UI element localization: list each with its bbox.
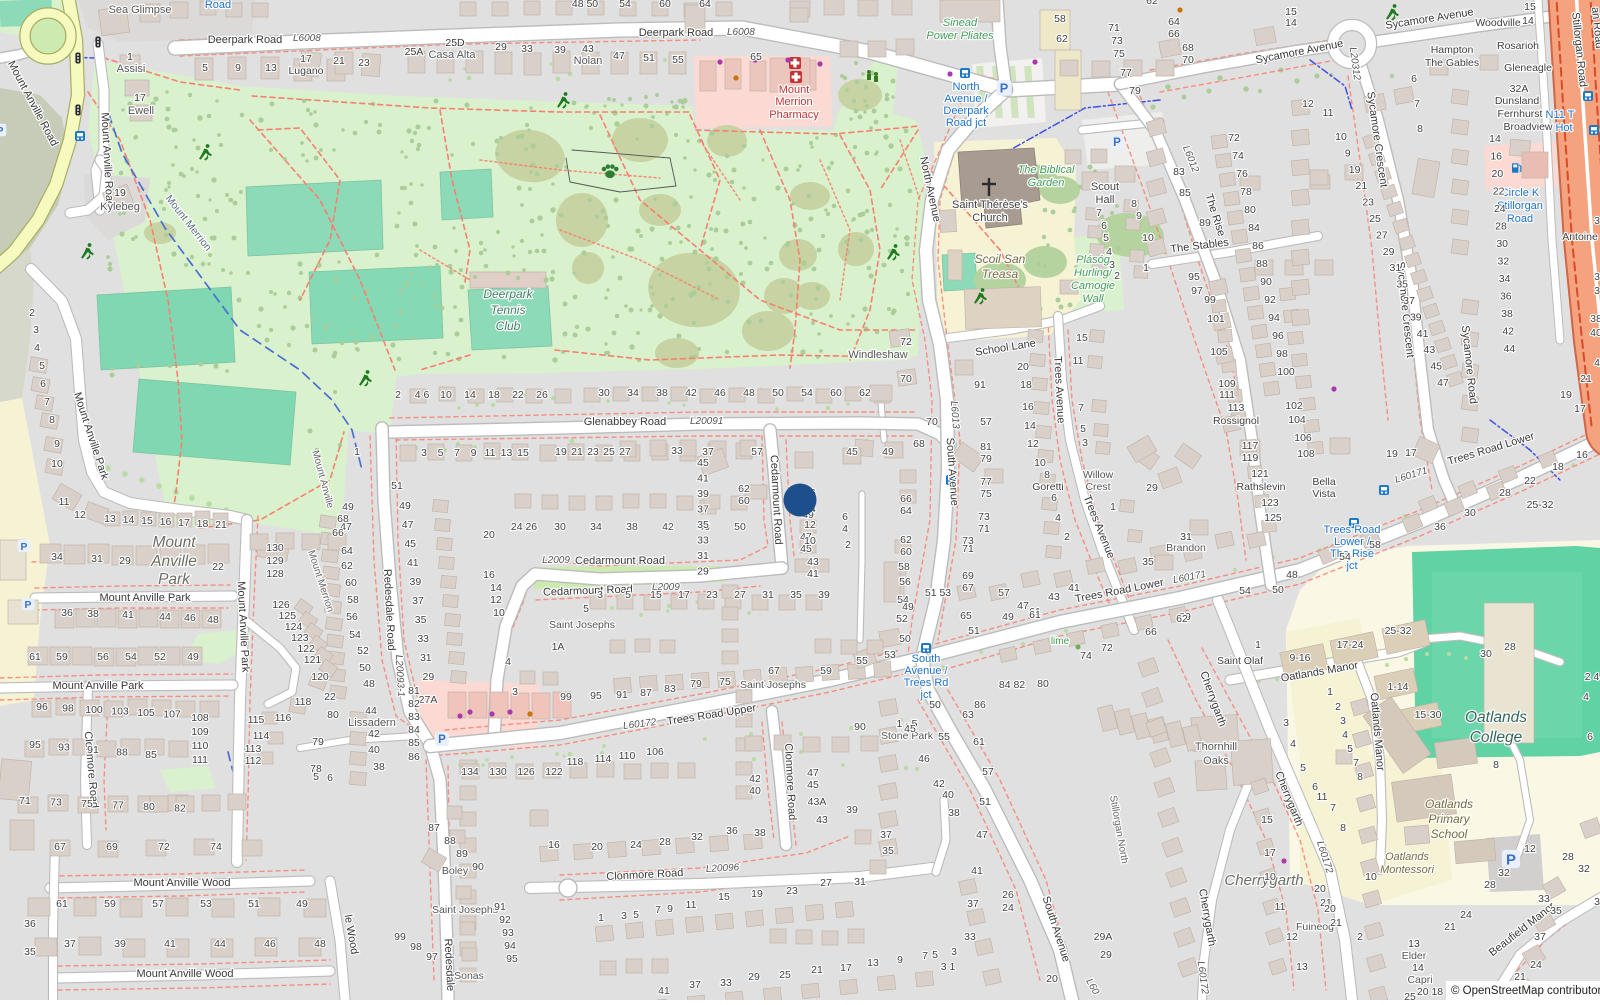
svg-text:10: 10 bbox=[1335, 131, 1347, 143]
svg-text:47: 47 bbox=[1017, 600, 1029, 612]
svg-text:Circle K: Circle K bbox=[1501, 187, 1540, 199]
svg-text:Deerpark: Deerpark bbox=[943, 105, 989, 117]
svg-text:Primary: Primary bbox=[1428, 812, 1470, 826]
svg-text:92: 92 bbox=[499, 914, 511, 926]
svg-text:11: 11 bbox=[686, 899, 697, 911]
svg-text:25A: 25A bbox=[405, 46, 424, 58]
svg-text:Lower /: Lower / bbox=[1334, 536, 1371, 548]
svg-text:9: 9 bbox=[1136, 210, 1142, 222]
svg-text:1: 1 bbox=[1110, 501, 1116, 513]
svg-text:Vista: Vista bbox=[1312, 488, 1335, 500]
svg-text:7: 7 bbox=[1414, 98, 1420, 110]
svg-text:28: 28 bbox=[659, 836, 671, 848]
svg-text:3: 3 bbox=[1082, 437, 1088, 449]
svg-text:46: 46 bbox=[714, 387, 726, 399]
svg-text:5: 5 bbox=[583, 603, 589, 615]
svg-text:21: 21 bbox=[1330, 917, 1342, 929]
svg-text:Casa Alta: Casa Alta bbox=[428, 49, 476, 61]
svg-text:91: 91 bbox=[494, 901, 506, 913]
svg-text:104: 104 bbox=[1288, 414, 1306, 426]
svg-text:31: 31 bbox=[420, 652, 432, 664]
svg-text:Montessori: Montessori bbox=[1380, 864, 1434, 876]
svg-text:8: 8 bbox=[1044, 469, 1050, 481]
svg-text:45: 45 bbox=[1430, 361, 1442, 373]
svg-text:33: 33 bbox=[1538, 893, 1550, 905]
svg-text:79: 79 bbox=[312, 736, 324, 748]
svg-text:3: 3 bbox=[951, 946, 957, 958]
svg-text:3: 3 bbox=[597, 589, 603, 601]
svg-text:L6008: L6008 bbox=[293, 33, 321, 44]
svg-text:106: 106 bbox=[1294, 432, 1312, 444]
svg-text:61: 61 bbox=[973, 736, 985, 748]
svg-text:L20091: L20091 bbox=[690, 416, 723, 427]
svg-text:20: 20 bbox=[1046, 973, 1058, 985]
svg-text:41: 41 bbox=[122, 609, 134, 621]
svg-text:Cedarmount Road: Cedarmount Road bbox=[575, 555, 665, 567]
svg-text:21: 21 bbox=[1356, 180, 1368, 192]
svg-text:35: 35 bbox=[790, 589, 802, 601]
svg-text:51: 51 bbox=[979, 796, 991, 808]
svg-text:22: 22 bbox=[324, 691, 336, 703]
svg-text:89: 89 bbox=[456, 848, 468, 860]
svg-text:43: 43 bbox=[1048, 591, 1060, 603]
svg-text:20: 20 bbox=[1324, 903, 1336, 915]
svg-text:26: 26 bbox=[536, 389, 548, 401]
svg-text:47: 47 bbox=[1437, 377, 1449, 389]
svg-text:29: 29 bbox=[119, 555, 131, 567]
svg-text:28: 28 bbox=[1484, 879, 1496, 891]
svg-text:6: 6 bbox=[1587, 731, 1593, 743]
svg-text:9: 9 bbox=[235, 62, 241, 74]
svg-text:57: 57 bbox=[982, 766, 994, 778]
svg-text:38: 38 bbox=[656, 387, 668, 399]
svg-text:41: 41 bbox=[971, 865, 983, 877]
svg-text:4: 4 bbox=[1055, 512, 1061, 524]
svg-text:43A: 43A bbox=[808, 796, 827, 808]
svg-text:Crest: Crest bbox=[1085, 481, 1110, 493]
svg-text:90: 90 bbox=[1260, 276, 1272, 288]
svg-text:20: 20 bbox=[483, 529, 495, 541]
svg-text:30: 30 bbox=[1464, 507, 1476, 519]
svg-text:43: 43 bbox=[816, 814, 828, 826]
svg-text:14: 14 bbox=[1489, 133, 1501, 145]
svg-text:77: 77 bbox=[1120, 67, 1132, 79]
svg-text:73: 73 bbox=[1111, 35, 1123, 47]
svg-text:100: 100 bbox=[1277, 366, 1295, 378]
svg-text:17: 17 bbox=[300, 53, 312, 65]
svg-text:54: 54 bbox=[801, 387, 813, 399]
svg-text:65: 65 bbox=[960, 610, 972, 622]
svg-text:Rathslevin: Rathslevin bbox=[1236, 481, 1285, 493]
svg-text:Road: Road bbox=[205, 0, 231, 11]
svg-text:27: 27 bbox=[1376, 229, 1388, 241]
svg-text:73: 73 bbox=[978, 511, 990, 523]
svg-text:10: 10 bbox=[1365, 871, 1377, 883]
svg-text:37: 37 bbox=[1534, 931, 1546, 943]
svg-text:114: 114 bbox=[595, 753, 612, 765]
svg-text:52: 52 bbox=[357, 645, 369, 657]
svg-text:96: 96 bbox=[36, 701, 48, 713]
svg-text:35: 35 bbox=[697, 519, 709, 531]
svg-text:83: 83 bbox=[664, 683, 676, 695]
svg-text:99: 99 bbox=[560, 691, 572, 703]
svg-text:17: 17 bbox=[178, 517, 190, 529]
svg-text:11: 11 bbox=[485, 447, 496, 459]
svg-text:Fuineog: Fuineog bbox=[1296, 921, 1334, 933]
svg-text:45: 45 bbox=[846, 446, 858, 458]
svg-text:61: 61 bbox=[56, 898, 68, 910]
svg-text:6: 6 bbox=[1411, 73, 1417, 85]
svg-text:38: 38 bbox=[948, 807, 960, 819]
svg-text:1A: 1A bbox=[552, 641, 565, 653]
svg-text:9: 9 bbox=[667, 903, 673, 915]
svg-text:12: 12 bbox=[1027, 438, 1039, 450]
svg-text:30: 30 bbox=[1496, 238, 1508, 250]
svg-text:14: 14 bbox=[464, 389, 476, 401]
svg-text:Mount: Mount bbox=[779, 84, 810, 96]
svg-text:99: 99 bbox=[1204, 294, 1216, 306]
svg-text:34: 34 bbox=[627, 387, 639, 399]
svg-text:L20096: L20096 bbox=[706, 862, 740, 875]
svg-text:Merrion: Merrion bbox=[775, 96, 812, 108]
svg-text:18: 18 bbox=[488, 389, 500, 401]
svg-text:21: 21 bbox=[1444, 921, 1456, 933]
svg-text:34: 34 bbox=[1499, 273, 1511, 285]
svg-text:60: 60 bbox=[900, 546, 912, 558]
svg-text:47: 47 bbox=[613, 50, 625, 62]
svg-text:14: 14 bbox=[123, 514, 135, 526]
svg-text:78: 78 bbox=[1240, 186, 1252, 198]
svg-text:83: 83 bbox=[408, 711, 420, 723]
svg-text:37: 37 bbox=[697, 504, 709, 516]
svg-text:95: 95 bbox=[506, 953, 518, 965]
svg-text:Saint Thérèse's: Saint Thérèse's bbox=[952, 199, 1028, 211]
svg-text:Brandon: Brandon bbox=[1166, 542, 1206, 554]
svg-text:88: 88 bbox=[116, 747, 128, 759]
svg-text:62: 62 bbox=[341, 560, 353, 572]
svg-text:16: 16 bbox=[1490, 151, 1502, 163]
svg-text:27: 27 bbox=[820, 877, 832, 889]
svg-text:86: 86 bbox=[1252, 240, 1264, 252]
svg-text:Capri: Capri bbox=[1407, 974, 1432, 986]
svg-text:8: 8 bbox=[1131, 198, 1137, 210]
svg-text:58: 58 bbox=[347, 594, 359, 606]
svg-text:Tennis: Tennis bbox=[491, 303, 526, 317]
svg-text:49: 49 bbox=[187, 651, 199, 663]
svg-text:Fernhurst: Fernhurst bbox=[1498, 108, 1543, 120]
svg-text:74: 74 bbox=[1232, 150, 1244, 162]
svg-text:Mount Anville Wood: Mount Anville Wood bbox=[133, 877, 230, 889]
svg-text:84 82: 84 82 bbox=[999, 679, 1025, 691]
svg-text:45: 45 bbox=[697, 457, 709, 469]
svg-text:49: 49 bbox=[399, 500, 411, 512]
svg-text:42: 42 bbox=[368, 728, 380, 740]
svg-text:5: 5 bbox=[625, 589, 631, 601]
svg-text:Pharmacy: Pharmacy bbox=[769, 109, 819, 121]
svg-text:31: 31 bbox=[1390, 262, 1402, 274]
svg-text:7: 7 bbox=[922, 950, 928, 962]
svg-text:Trees Rd: Trees Rd bbox=[904, 677, 949, 689]
svg-text:18: 18 bbox=[197, 518, 209, 530]
svg-text:38: 38 bbox=[754, 827, 766, 839]
svg-text:75: 75 bbox=[1113, 48, 1125, 60]
svg-text:9: 9 bbox=[1345, 147, 1351, 159]
svg-text:17: 17 bbox=[1574, 403, 1586, 415]
svg-text:64: 64 bbox=[1168, 16, 1180, 28]
svg-text:20: 20 bbox=[1017, 361, 1029, 373]
svg-text:Elder: Elder bbox=[1402, 950, 1427, 962]
svg-text:82: 82 bbox=[408, 698, 420, 710]
svg-text:36: 36 bbox=[1500, 291, 1512, 303]
svg-text:14: 14 bbox=[1522, 15, 1534, 27]
svg-text:36: 36 bbox=[1434, 521, 1446, 533]
svg-text:17: 17 bbox=[840, 962, 852, 974]
svg-text:81: 81 bbox=[980, 441, 992, 453]
svg-text:68: 68 bbox=[913, 438, 925, 450]
svg-text:6: 6 bbox=[1312, 781, 1318, 793]
svg-text:80: 80 bbox=[1244, 204, 1256, 216]
svg-text:77: 77 bbox=[112, 800, 124, 812]
svg-text:125: 125 bbox=[1264, 512, 1282, 524]
svg-text:Hampton: Hampton bbox=[1431, 44, 1474, 56]
svg-text:25: 25 bbox=[779, 969, 791, 981]
svg-text:61: 61 bbox=[1029, 609, 1041, 621]
svg-text:Oatlands: Oatlands bbox=[1465, 709, 1527, 726]
svg-text:30: 30 bbox=[1480, 648, 1492, 660]
svg-text:Scout: Scout bbox=[1091, 181, 1119, 193]
svg-text:The Gables: The Gables bbox=[1425, 57, 1479, 69]
svg-text:67: 67 bbox=[768, 665, 780, 677]
svg-text:16: 16 bbox=[1022, 401, 1034, 413]
svg-text:5: 5 bbox=[438, 447, 444, 459]
svg-text:Road jct: Road jct bbox=[946, 117, 986, 129]
svg-text:19: 19 bbox=[1349, 164, 1361, 176]
svg-text:91: 91 bbox=[87, 744, 99, 756]
svg-text:19: 19 bbox=[1386, 448, 1398, 460]
svg-text:7: 7 bbox=[655, 904, 661, 916]
svg-text:5: 5 bbox=[202, 62, 208, 74]
svg-text:39: 39 bbox=[410, 576, 422, 588]
svg-text:33: 33 bbox=[697, 535, 709, 547]
svg-text:45: 45 bbox=[404, 538, 416, 550]
svg-text:10: 10 bbox=[1264, 871, 1276, 883]
svg-text:5: 5 bbox=[633, 909, 639, 921]
svg-text:31: 31 bbox=[762, 589, 774, 601]
svg-text:32A: 32A bbox=[1510, 83, 1529, 95]
svg-text:28: 28 bbox=[1499, 487, 1511, 499]
svg-text:38: 38 bbox=[1501, 308, 1513, 320]
svg-text:13: 13 bbox=[501, 447, 513, 459]
svg-text:25D: 25D bbox=[445, 37, 465, 49]
svg-text:29: 29 bbox=[423, 671, 435, 683]
svg-text:48: 48 bbox=[363, 678, 375, 690]
svg-text:32: 32 bbox=[691, 831, 703, 843]
svg-text:56: 56 bbox=[346, 611, 358, 623]
svg-text:91: 91 bbox=[974, 379, 986, 391]
svg-text:29: 29 bbox=[697, 566, 709, 578]
svg-text:43: 43 bbox=[1424, 344, 1436, 356]
svg-text:38: 38 bbox=[626, 521, 638, 533]
svg-text:Avenue /: Avenue / bbox=[944, 93, 988, 105]
svg-text:96: 96 bbox=[1272, 330, 1284, 342]
svg-text:9: 9 bbox=[897, 954, 903, 966]
svg-text:P: P bbox=[0, 126, 4, 137]
svg-text:90: 90 bbox=[472, 861, 484, 873]
svg-text:119: 119 bbox=[1242, 452, 1259, 464]
svg-text:Boley: Boley bbox=[442, 865, 469, 877]
svg-text:40: 40 bbox=[1590, 327, 1600, 339]
svg-text:36: 36 bbox=[726, 825, 738, 837]
svg-text:31: 31 bbox=[697, 550, 709, 562]
svg-text:1: 1 bbox=[1327, 686, 1333, 698]
svg-text:1: 1 bbox=[1143, 262, 1149, 274]
svg-text:90: 90 bbox=[854, 721, 866, 733]
svg-text:15: 15 bbox=[650, 589, 662, 601]
svg-text:71: 71 bbox=[978, 523, 990, 535]
svg-text:45: 45 bbox=[807, 779, 819, 791]
svg-text:25: 25 bbox=[1404, 991, 1416, 1000]
svg-text:35: 35 bbox=[415, 614, 427, 626]
svg-text:Deerpark Road: Deerpark Road bbox=[208, 34, 283, 46]
svg-text:60: 60 bbox=[830, 387, 842, 399]
svg-text:64: 64 bbox=[341, 545, 353, 557]
svg-text:77: 77 bbox=[980, 476, 992, 488]
svg-text:L2009: L2009 bbox=[542, 555, 570, 566]
svg-text:Goretti: Goretti bbox=[1032, 481, 1064, 493]
svg-text:30: 30 bbox=[598, 387, 610, 399]
svg-text:33: 33 bbox=[720, 977, 732, 989]
svg-text:68: 68 bbox=[1182, 42, 1194, 54]
svg-text:22: 22 bbox=[512, 389, 524, 401]
svg-text:3: 3 bbox=[33, 324, 39, 336]
svg-text:11: 11 bbox=[1275, 901, 1286, 913]
svg-text:99: 99 bbox=[394, 931, 406, 943]
svg-text:108: 108 bbox=[191, 712, 209, 724]
svg-text:P: P bbox=[438, 734, 446, 746]
svg-text:The Rise: The Rise bbox=[1330, 548, 1374, 560]
svg-text:5: 5 bbox=[1103, 232, 1109, 244]
svg-text:24: 24 bbox=[1530, 959, 1542, 971]
svg-text:3: 3 bbox=[621, 910, 627, 922]
svg-text:38: 38 bbox=[87, 608, 99, 620]
svg-text:23: 23 bbox=[358, 57, 370, 69]
svg-text:Club: Club bbox=[496, 319, 521, 333]
svg-text:11: 11 bbox=[1317, 791, 1328, 803]
svg-text:27: 27 bbox=[734, 589, 746, 601]
svg-text:20 18: 20 18 bbox=[1417, 986, 1443, 998]
svg-text:19: 19 bbox=[555, 446, 567, 458]
svg-text:31: 31 bbox=[1180, 531, 1192, 543]
svg-text:13: 13 bbox=[265, 62, 277, 74]
svg-text:37: 37 bbox=[967, 898, 979, 910]
svg-text:85: 85 bbox=[145, 749, 157, 761]
svg-text:66: 66 bbox=[1145, 626, 1157, 638]
svg-text:Assisi: Assisi bbox=[117, 63, 146, 75]
svg-text:43: 43 bbox=[582, 43, 594, 55]
svg-text:7: 7 bbox=[1096, 207, 1102, 219]
svg-text:54: 54 bbox=[349, 629, 361, 641]
svg-text:35: 35 bbox=[1396, 279, 1408, 291]
svg-text:15: 15 bbox=[1524, 1, 1536, 13]
svg-text:The Biblical: The Biblical bbox=[1018, 164, 1075, 176]
svg-text:Willow: Willow bbox=[1083, 469, 1114, 481]
svg-text:95: 95 bbox=[1188, 271, 1200, 283]
svg-text:13: 13 bbox=[104, 513, 116, 525]
svg-text:24: 24 bbox=[1494, 203, 1506, 215]
svg-text:6: 6 bbox=[842, 511, 848, 523]
svg-text:15: 15 bbox=[1076, 332, 1088, 344]
svg-text:4: 4 bbox=[1290, 738, 1296, 750]
svg-text:11: 11 bbox=[1073, 355, 1084, 367]
svg-text:27: 27 bbox=[619, 446, 631, 458]
svg-text:105: 105 bbox=[137, 707, 155, 719]
svg-text:39: 39 bbox=[1410, 311, 1422, 323]
svg-text:16: 16 bbox=[548, 839, 560, 851]
svg-text:39: 39 bbox=[818, 589, 830, 601]
svg-text:107: 107 bbox=[163, 709, 181, 721]
svg-text:35: 35 bbox=[1550, 905, 1562, 917]
svg-text:26: 26 bbox=[1002, 889, 1014, 901]
svg-text:79: 79 bbox=[980, 453, 992, 465]
svg-text:46: 46 bbox=[918, 753, 930, 765]
svg-text:38: 38 bbox=[373, 761, 385, 773]
svg-text:71: 71 bbox=[962, 543, 974, 555]
svg-text:50: 50 bbox=[359, 662, 371, 674]
svg-text:13: 13 bbox=[1296, 961, 1308, 973]
svg-text:35: 35 bbox=[882, 845, 894, 857]
svg-text:17: 17 bbox=[134, 92, 146, 104]
svg-text:Rosarioh: Rosarioh bbox=[1497, 40, 1539, 52]
svg-text:50: 50 bbox=[899, 633, 911, 645]
svg-text:67: 67 bbox=[962, 582, 974, 594]
svg-text:98: 98 bbox=[62, 703, 74, 715]
svg-text:73: 73 bbox=[50, 797, 62, 809]
svg-text:59: 59 bbox=[104, 898, 116, 910]
svg-text:84: 84 bbox=[1248, 222, 1260, 234]
svg-text:55: 55 bbox=[938, 731, 950, 743]
svg-text:111: 111 bbox=[1219, 389, 1235, 401]
svg-text:14: 14 bbox=[1412, 962, 1424, 974]
svg-text:61: 61 bbox=[29, 651, 41, 663]
svg-text:3: 3 bbox=[421, 447, 427, 459]
svg-text:32: 32 bbox=[1498, 256, 1510, 268]
svg-text:88: 88 bbox=[1256, 258, 1268, 270]
svg-text:94: 94 bbox=[504, 940, 516, 952]
svg-text:29: 29 bbox=[495, 41, 507, 53]
svg-text:44: 44 bbox=[214, 938, 226, 950]
svg-text:86: 86 bbox=[408, 751, 420, 763]
svg-text:37: 37 bbox=[412, 595, 424, 607]
svg-text:12: 12 bbox=[1524, 843, 1536, 855]
svg-text:1: 1 bbox=[1255, 639, 1261, 651]
svg-text:21: 21 bbox=[333, 55, 345, 67]
svg-text:69: 69 bbox=[962, 570, 974, 582]
svg-text:21: 21 bbox=[571, 446, 583, 458]
svg-text:5: 5 bbox=[313, 771, 319, 783]
svg-text:16: 16 bbox=[483, 569, 495, 581]
svg-text:105: 105 bbox=[1210, 346, 1228, 358]
svg-text:2 4: 2 4 bbox=[1585, 671, 1600, 683]
svg-text:30: 30 bbox=[1594, 285, 1600, 297]
svg-text:Mount: Mount bbox=[152, 534, 196, 551]
svg-text:24: 24 bbox=[630, 839, 642, 851]
svg-text:Sonas: Sonas bbox=[454, 970, 484, 982]
svg-text:62: 62 bbox=[1176, 613, 1188, 625]
svg-text:17: 17 bbox=[1264, 847, 1276, 859]
svg-text:7: 7 bbox=[1353, 757, 1359, 769]
svg-text:66: 66 bbox=[1168, 28, 1180, 40]
svg-text:© OpenStreetMap contributors: © OpenStreetMap contributors bbox=[1451, 985, 1600, 997]
